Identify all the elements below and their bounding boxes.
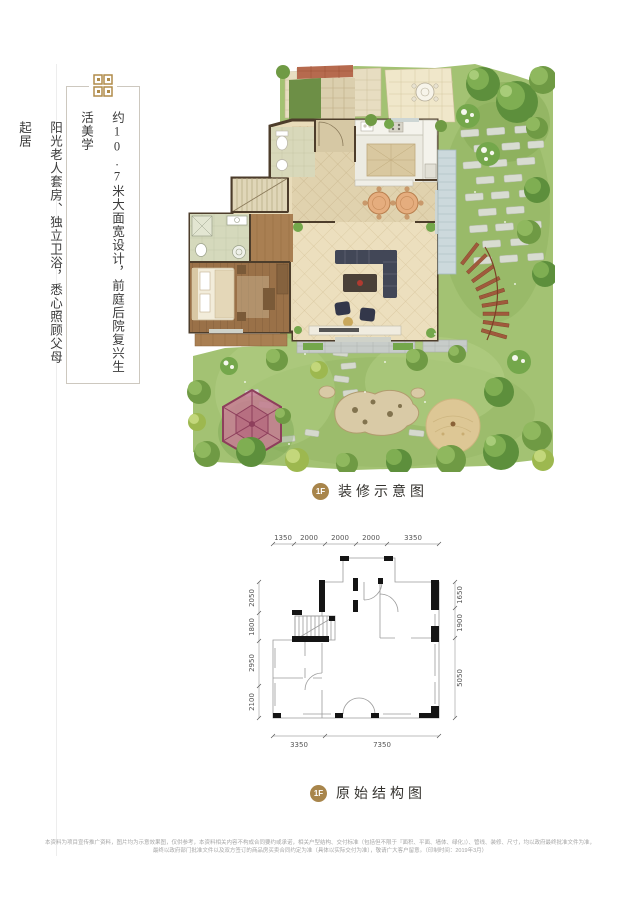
- bedroom: [190, 262, 290, 332]
- house-body: [190, 118, 439, 342]
- svg-text:3350: 3350: [404, 534, 422, 542]
- svg-text:2100: 2100: [248, 693, 256, 711]
- water-feature: [438, 150, 456, 274]
- structure-caption-row: 1F 原始结构图: [243, 783, 493, 803]
- slogan-text: 约10.7米大面宽设计，前庭后院复兴生活美学 阳光老人套房、独立卫浴，悉心照顾父…: [67, 109, 139, 375]
- slogan-line-1: 约10.7米大面宽设计，前庭后院复兴生活美学: [70, 111, 132, 375]
- svg-text:1350: 1350: [274, 534, 292, 542]
- annex-bathroom: [190, 214, 250, 262]
- disclaimer-line-2: 最终以政府部门批准文件以及双方签订的商品房买卖合同约定为准（具体以实际交付为准）…: [40, 847, 600, 855]
- svg-text:2950: 2950: [248, 654, 256, 672]
- structure-floor-badge: 1F: [310, 785, 327, 802]
- chinese-knot-icon: [89, 73, 117, 99]
- svg-text:2000: 2000: [362, 534, 380, 542]
- svg-text:1650: 1650: [456, 586, 464, 604]
- disclaimer-line-1: 本资料为项目宣传推广资料，图片均为示意效果图，仅供参考，本资料相关内容不构成合同…: [40, 839, 600, 847]
- upper-bathroom: [271, 127, 315, 177]
- decorated-floorplan: [185, 62, 555, 472]
- decor-caption: 装修示意图: [338, 481, 428, 501]
- slogan-line-2: 阳光老人套房、独立卫浴，悉心照顾父母起居: [8, 121, 70, 375]
- back-patio: [285, 65, 381, 124]
- brochure-page: 约10.7米大面宽设计，前庭后院复兴生活美学 阳光老人套房、独立卫浴，悉心照顾父…: [0, 0, 640, 920]
- decor-caption-row: 1F 装修示意图: [185, 481, 555, 501]
- svg-text:3350: 3350: [290, 741, 308, 749]
- svg-text:2000: 2000: [331, 534, 349, 542]
- stairs: [232, 178, 288, 212]
- slogan-panel: 约10.7米大面宽设计，前庭后院复兴生活美学 阳光老人套房、独立卫浴，悉心照顾父…: [66, 86, 140, 384]
- svg-text:7350: 7350: [373, 741, 391, 749]
- structure-caption: 原始结构图: [336, 783, 426, 803]
- svg-text:2050: 2050: [248, 589, 256, 607]
- decor-floor-badge: 1F: [312, 483, 329, 500]
- svg-text:2000: 2000: [300, 534, 318, 542]
- corridor-floor: [250, 214, 293, 262]
- entry-foyer: [315, 120, 357, 152]
- bearing-walls: [273, 556, 439, 718]
- kitchen: [355, 120, 437, 182]
- structural-floorplan: 1350 2000 2000 2000 3350 2050 1800 2950 …: [243, 528, 493, 768]
- sand-garden: [426, 399, 480, 453]
- svg-text:1900: 1900: [456, 614, 464, 632]
- svg-text:5050: 5050: [456, 669, 464, 687]
- disclaimer: 本资料为项目宣传推广资料，图片均为示意效果图，仅供参考，本资料相关内容不构成合同…: [40, 839, 600, 855]
- rear-terrace: [385, 68, 455, 122]
- svg-text:1800: 1800: [248, 618, 256, 636]
